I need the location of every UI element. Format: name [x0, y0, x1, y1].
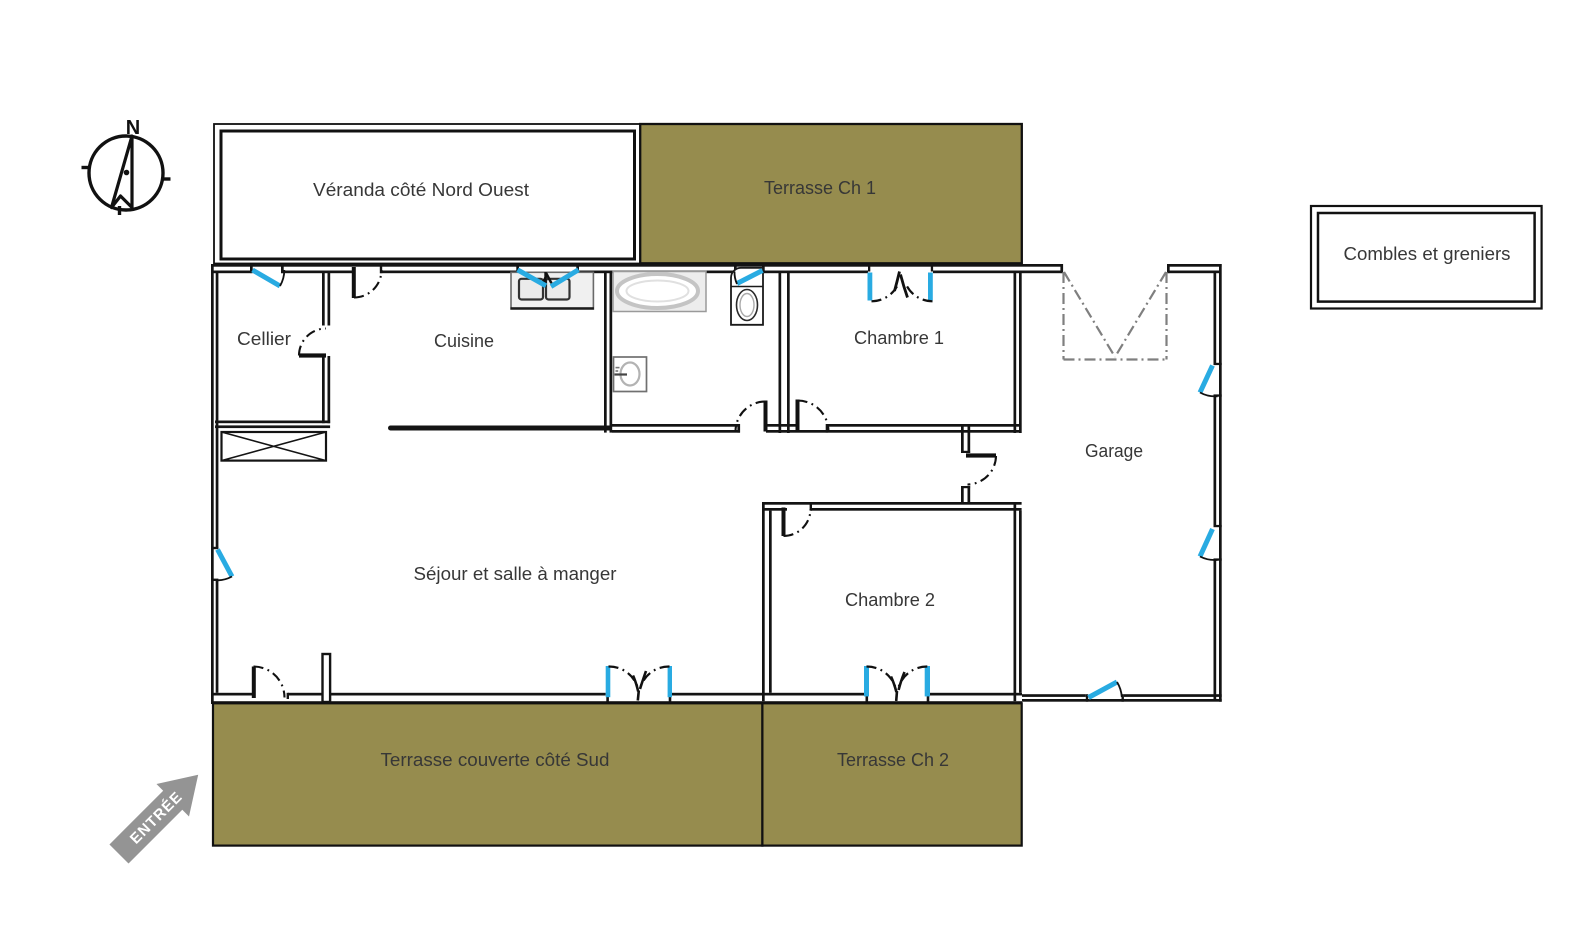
svg-text:Chambre 1: Chambre 1	[854, 328, 944, 348]
svg-text:Garage: Garage	[1085, 441, 1143, 461]
svg-text:Terrasse couverte côté Sud: Terrasse couverte côté Sud	[381, 750, 610, 770]
svg-text:Cuisine: Cuisine	[434, 331, 494, 351]
svg-text:Véranda côté Nord Ouest: Véranda côté Nord Ouest	[313, 180, 529, 200]
svg-text:Cellier: Cellier	[237, 329, 291, 349]
svg-text:Terrasse Ch 1: Terrasse Ch 1	[764, 178, 876, 198]
svg-text:Chambre 2: Chambre 2	[845, 590, 935, 610]
svg-text:Combles et greniers: Combles et greniers	[1344, 244, 1511, 264]
svg-text:Séjour et salle à manger: Séjour et salle à manger	[414, 564, 617, 584]
svg-text:N: N	[126, 117, 140, 139]
svg-text:Terrasse Ch 2: Terrasse Ch 2	[837, 750, 949, 770]
